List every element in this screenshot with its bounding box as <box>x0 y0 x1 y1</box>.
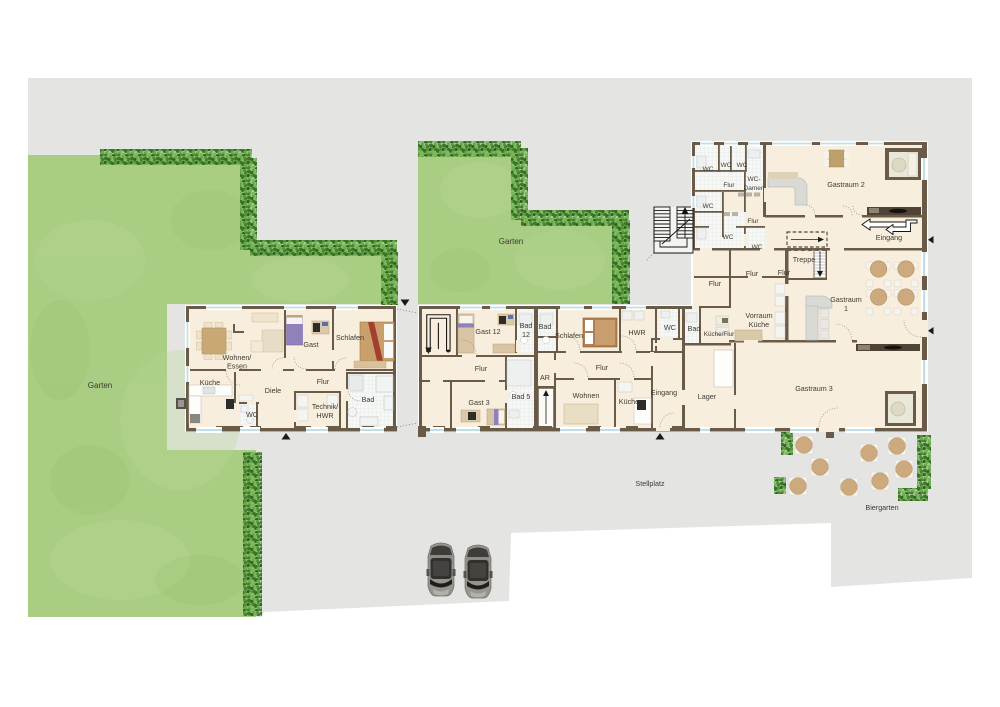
svg-text:Technik/: Technik/ <box>312 402 338 411</box>
svg-text:Essen: Essen <box>227 362 247 371</box>
svg-text:Gastraum 2: Gastraum 2 <box>827 180 865 189</box>
svg-text:Bad: Bad <box>362 395 375 404</box>
svg-text:Flur: Flur <box>747 218 759 225</box>
svg-text:Gast: Gast <box>303 340 318 349</box>
svg-text:Küche: Küche <box>200 378 220 387</box>
svg-text:Gast 12: Gast 12 <box>475 327 500 336</box>
svg-text:WC: WC <box>752 244 763 251</box>
svg-text:Treppe: Treppe <box>793 255 816 264</box>
svg-text:Biergarten: Biergarten <box>865 503 898 512</box>
svg-text:Bad: Bad <box>539 322 552 331</box>
svg-text:1: 1 <box>844 304 848 313</box>
svg-text:12: 12 <box>522 330 530 339</box>
svg-text:Gastraum 3: Gastraum 3 <box>795 384 833 393</box>
svg-text:WC: WC <box>721 162 732 169</box>
svg-text:Schlafen: Schlafen <box>555 331 583 340</box>
svg-text:Flur: Flur <box>317 377 330 386</box>
svg-text:Eingang: Eingang <box>876 233 902 242</box>
svg-text:Küche: Küche <box>749 320 769 329</box>
svg-text:Diele: Diele <box>265 386 281 395</box>
svg-text:HWR: HWR <box>316 411 333 420</box>
svg-text:Damen: Damen <box>744 185 765 192</box>
svg-text:Küche/Flur: Küche/Flur <box>704 331 734 338</box>
svg-text:Flur: Flur <box>475 364 488 373</box>
svg-text:Eingang: Eingang <box>651 388 677 397</box>
svg-text:Garten: Garten <box>499 237 523 246</box>
svg-text:Bad 5: Bad 5 <box>512 392 531 401</box>
svg-text:WC: WC <box>664 323 676 332</box>
svg-text:Bad: Bad <box>688 324 701 333</box>
svg-text:HWR: HWR <box>628 328 645 337</box>
svg-text:Küche: Küche <box>619 397 639 406</box>
svg-text:WC: WC <box>737 162 748 169</box>
svg-text:Lager: Lager <box>698 392 717 401</box>
svg-text:Flur: Flur <box>778 268 791 277</box>
svg-text:Gastraum: Gastraum <box>830 295 862 304</box>
svg-text:Flur: Flur <box>746 269 759 278</box>
svg-text:Gast 3: Gast 3 <box>468 398 489 407</box>
svg-text:WC: WC <box>703 166 714 173</box>
svg-text:Flur: Flur <box>709 279 722 288</box>
svg-text:WC: WC <box>723 234 734 241</box>
svg-text:Bad: Bad <box>520 321 533 330</box>
svg-text:WC-: WC- <box>748 176 761 183</box>
svg-text:WC: WC <box>703 203 714 210</box>
svg-text:Vorraum: Vorraum <box>745 311 772 320</box>
svg-text:Schlafen: Schlafen <box>336 333 364 342</box>
svg-text:Wohnen: Wohnen <box>573 391 600 400</box>
svg-text:AR: AR <box>540 373 550 382</box>
svg-text:Flur: Flur <box>723 182 735 189</box>
svg-text:Flur: Flur <box>596 363 609 372</box>
svg-text:WC: WC <box>246 410 258 419</box>
svg-text:Stellplatz: Stellplatz <box>635 479 665 488</box>
svg-text:Garten: Garten <box>88 381 112 390</box>
